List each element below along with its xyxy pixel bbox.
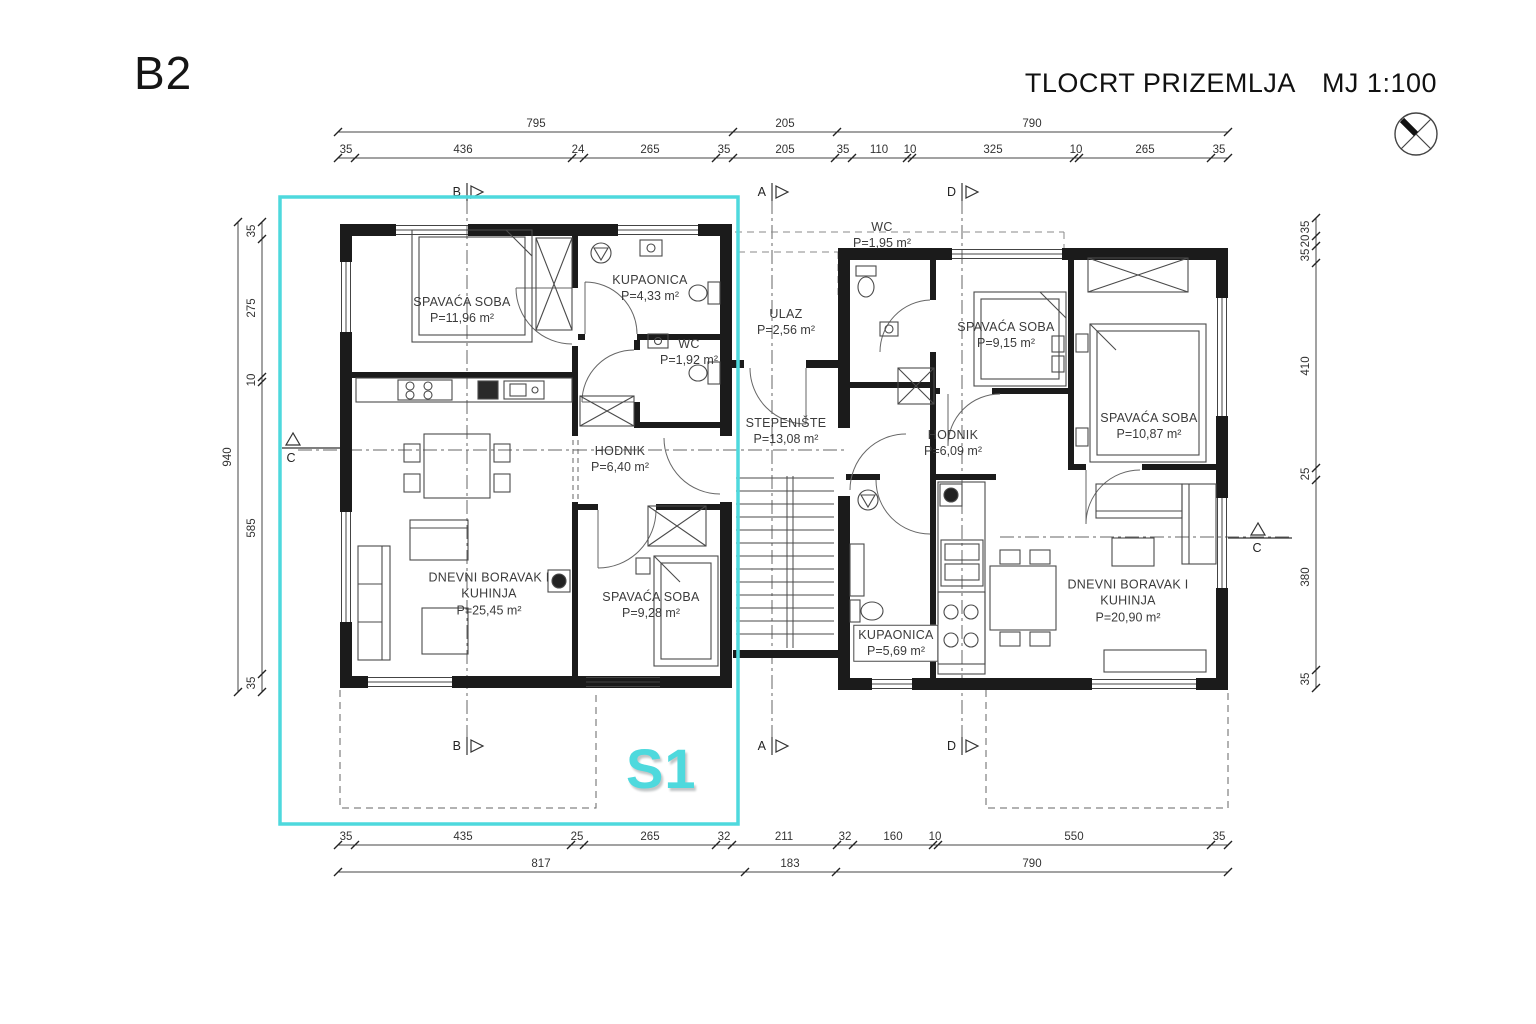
kitchen-counter [356, 378, 572, 402]
dim-label: 25 [1300, 468, 1312, 481]
sheet-title-text: TLOCRT PRIZEMLJA [1025, 68, 1296, 98]
chair [1000, 632, 1020, 646]
section-marker-label: D [947, 739, 956, 753]
dim-label: 436 [453, 144, 472, 156]
dim-label: 24 [572, 144, 585, 156]
north-compass-icon [1395, 113, 1437, 155]
dim-label: 205 [775, 118, 794, 130]
terraces [340, 690, 1228, 808]
dim-label: 35 [1300, 249, 1312, 262]
dim-label: 35 [246, 677, 258, 690]
nightstand [1076, 428, 1088, 446]
dim-label: 211 [775, 831, 793, 843]
nightstand [636, 558, 650, 574]
stair-rail [787, 476, 793, 648]
toilet-tank [856, 266, 876, 276]
section-marker-label: C [1252, 541, 1261, 555]
dining-table [990, 566, 1056, 630]
room-label-s2-bathroom: KUPAONICA P=5,69 m² [853, 625, 938, 662]
chair [404, 474, 420, 492]
dim-label: 265 [640, 831, 659, 843]
dim-label: 410 [1300, 356, 1312, 375]
room-label-s2-bedroom1: SPAVAĆA SOBA P=9,15 m² [957, 319, 1054, 352]
dim-label: 10 [929, 831, 942, 843]
coffee-table [1112, 538, 1154, 566]
toilet [689, 285, 707, 301]
kitchen-appliance [478, 381, 498, 399]
dim-label: 790 [1022, 858, 1041, 870]
dim-label: 35 [718, 144, 731, 156]
room-label-s2-hall: HODNIK P=6,09 m² [924, 427, 982, 460]
chair [1000, 550, 1020, 564]
chair [494, 474, 510, 492]
floor-plan-sheet: 795 205 790 35 436 24 265 35 205 35 110 … [0, 0, 1536, 1024]
sofa-corner [1182, 484, 1216, 564]
dim-label: 35 [1213, 831, 1226, 843]
dim-label: 183 [780, 858, 799, 870]
chair [1030, 550, 1050, 564]
room-label-s2-wc: WC P=1,95 m² [853, 219, 911, 252]
room-label-s1-bathroom: KUPAONICA P=4,33 m² [612, 272, 687, 305]
room-label-s2-living: DNEVNI BORAVAK I KUHINJA P=20,90 m² [1053, 577, 1203, 626]
dim-label: 265 [1135, 144, 1154, 156]
dining-table [424, 434, 490, 498]
room-label-s1-hall: HODNIK P=6,40 m² [591, 443, 649, 476]
dim-label: 160 [883, 831, 902, 843]
nightstand [1076, 334, 1088, 352]
dim-label: 35 [1213, 144, 1226, 156]
dim-label: 435 [453, 831, 472, 843]
dim-label: 35 [1300, 673, 1312, 686]
bed-pillow-fold [654, 556, 680, 582]
sideboard [1104, 650, 1206, 672]
bed-pillow-fold [1040, 292, 1066, 318]
dim-label: 325 [983, 144, 1002, 156]
room-label-s1-wc: WC P=1,92 m² [660, 336, 718, 369]
dim-label: 585 [246, 518, 258, 537]
terrace-right [986, 690, 1228, 808]
room-label-s1-bedroom1: SPAVAĆA SOBA P=11,96 m² [413, 294, 510, 327]
dim-label: 10 [904, 144, 917, 156]
dim-label: 10 [1070, 144, 1083, 156]
floor-plan-drawing: 795 205 790 35 436 24 265 35 205 35 110 … [0, 0, 1536, 1024]
dim-label: 10 [246, 374, 258, 387]
dim-label: 817 [531, 858, 550, 870]
dim-label: 940 [222, 447, 234, 466]
chair [1030, 632, 1050, 646]
section-marker-label: C [286, 451, 295, 465]
room-label-staircase: STEPENIŠTE P=13,08 m² [746, 415, 827, 448]
section-marker-label: A [758, 185, 767, 199]
nightstand [1052, 356, 1064, 372]
toilet-tank [850, 600, 860, 622]
chair [404, 444, 420, 462]
dim-label: 20 [1300, 235, 1312, 248]
dim-label: 550 [1064, 831, 1083, 843]
section-marker-label: B [453, 739, 461, 753]
sofa [1096, 484, 1182, 518]
room-label-s1-living: DNEVNI BORAVAK I KUHINJA P=25,45 m² [414, 570, 564, 619]
toilet [858, 277, 874, 297]
sofa [358, 546, 390, 660]
plan-code-title: B2 [134, 46, 192, 100]
dim-label: 795 [526, 118, 545, 130]
dim-label: 275 [246, 298, 258, 317]
dim-label: 32 [718, 831, 731, 843]
room-label-s1-bedroom2: SPAVAĆA SOBA P=9,28 m² [602, 589, 699, 622]
toilet [861, 602, 883, 620]
chair [494, 444, 510, 462]
dim-label: 35 [340, 831, 353, 843]
bathroom-sink [640, 240, 662, 256]
sheet-title: TLOCRT PRIZEMLJAMJ 1:100 [1025, 68, 1437, 99]
section-marker-label: D [947, 185, 956, 199]
section-marker-label: A [758, 739, 767, 753]
section-markers: B A D B A D C C [282, 183, 1292, 755]
stair-treads [736, 478, 834, 634]
room-label-entrance: ULAZ P=2,56 m² [757, 306, 815, 339]
unit-s1-label: S1 [626, 736, 697, 801]
terrace-left [340, 690, 596, 808]
toilet-tank [708, 282, 720, 304]
dim-label: 790 [1022, 118, 1041, 130]
dim-label: 35 [340, 144, 353, 156]
dim-label: 205 [775, 144, 794, 156]
bed-pillow-fold [1090, 324, 1116, 350]
dim-label: 32 [839, 831, 852, 843]
dim-label: 35 [1300, 221, 1312, 234]
room-label-s2-bedroom2: SPAVAĆA SOBA P=10,87 m² [1100, 410, 1197, 443]
bathroom-cabinet [850, 544, 864, 596]
dim-label: 35 [246, 225, 258, 238]
dim-label: 35 [837, 144, 850, 156]
dim-label: 110 [870, 144, 888, 156]
dim-label: 380 [1300, 567, 1312, 586]
armchair [410, 520, 468, 560]
sheet-scale: MJ 1:100 [1322, 68, 1437, 98]
dim-label: 265 [640, 144, 659, 156]
dim-label: 25 [571, 831, 584, 843]
